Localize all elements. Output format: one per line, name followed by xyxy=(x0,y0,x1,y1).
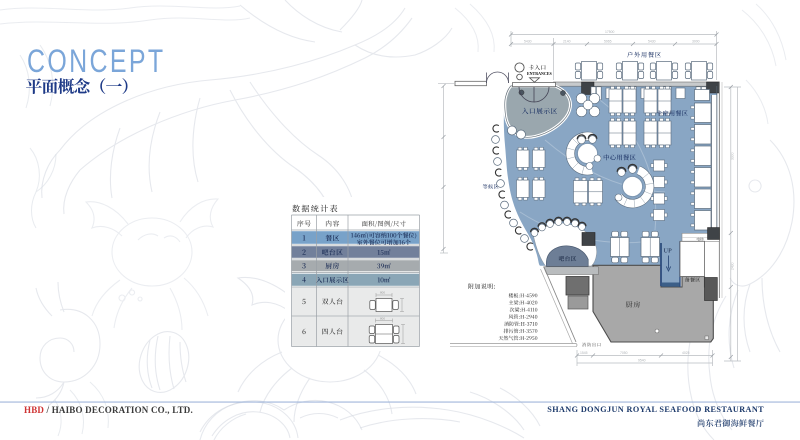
svg-text:7050: 7050 xyxy=(620,351,628,355)
svg-text:800: 800 xyxy=(380,291,385,295)
svg-text:9540: 9540 xyxy=(638,359,646,363)
svg-text:3000: 3000 xyxy=(692,40,700,44)
svg-text:5965: 5965 xyxy=(604,40,612,44)
svg-text:2140: 2140 xyxy=(563,40,571,44)
svg-text:5430: 5430 xyxy=(524,40,532,44)
svg-text:ENTRANCES: ENTRANCES xyxy=(527,71,552,76)
svg-text:3300: 3300 xyxy=(731,152,735,160)
svg-text:800: 800 xyxy=(380,317,385,321)
svg-text:1545: 1545 xyxy=(580,351,588,355)
svg-text:4025: 4025 xyxy=(682,351,690,355)
svg-text:2430: 2430 xyxy=(731,262,735,270)
svg-text:17500: 17500 xyxy=(605,30,615,34)
svg-text:5430: 5430 xyxy=(648,40,656,44)
